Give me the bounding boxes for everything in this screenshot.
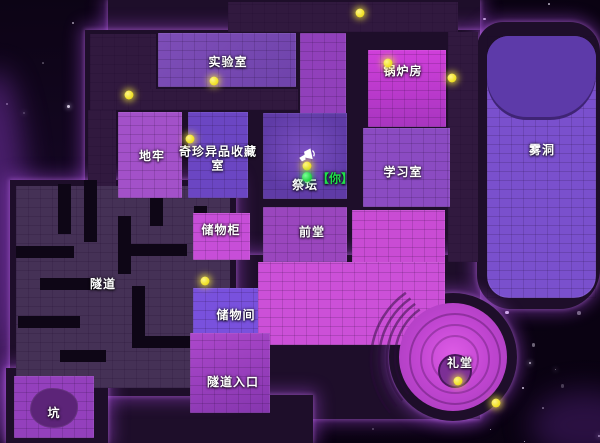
orb-layer xyxy=(0,0,600,443)
collectible-orb xyxy=(384,59,393,68)
collectible-orb xyxy=(201,277,210,286)
announcement-speaker-icon xyxy=(298,148,318,164)
collectible-orb xyxy=(448,74,457,83)
collectible-orb xyxy=(454,377,463,386)
collectible-orb xyxy=(356,9,365,18)
player-name-tag: 【你】 xyxy=(317,170,353,187)
collectible-orb xyxy=(492,399,501,408)
collectible-orb xyxy=(210,77,219,86)
collectible-orb xyxy=(125,91,134,100)
player-marker xyxy=(302,172,312,182)
collectible-orb xyxy=(186,135,195,144)
game-map-screen: 实验室 锅炉房 雾洞 地牢 奇珍异品收藏室 祭坛 学习室 储物柜 前堂 储物间 … xyxy=(0,0,600,443)
